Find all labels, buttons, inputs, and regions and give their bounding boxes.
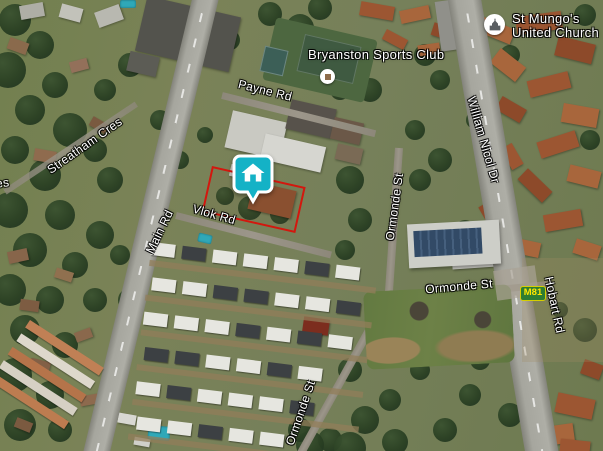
- tree: [433, 418, 457, 442]
- estate-house: [212, 250, 237, 266]
- estate-house: [151, 277, 176, 293]
- solar-panels: [413, 228, 482, 258]
- building-roof: [490, 48, 526, 82]
- tree: [428, 148, 452, 172]
- estate-house: [136, 417, 161, 433]
- tree: [0, 192, 28, 228]
- tree: [45, 200, 75, 230]
- estate-house: [167, 420, 192, 436]
- estate-house: [236, 358, 261, 374]
- route-badge-m81: M81: [520, 286, 546, 301]
- estate-house: [181, 246, 206, 262]
- church-label[interactable]: St Mungo's United Church: [512, 12, 599, 41]
- estate-house: [174, 315, 199, 331]
- estate-house: [197, 389, 222, 405]
- satellite-map[interactable]: Bryanston Sports Club St Mungo's United …: [0, 0, 603, 451]
- estate-house: [204, 319, 229, 335]
- building-roof: [527, 71, 572, 98]
- estate-house: [144, 347, 169, 363]
- house-marker-icon[interactable]: [231, 153, 275, 205]
- church-icon[interactable]: [484, 14, 505, 35]
- tree: [0, 52, 26, 88]
- estate-house: [259, 432, 284, 448]
- tree: [348, 208, 372, 232]
- sports-club-label[interactable]: Bryanston Sports Club: [308, 48, 444, 62]
- building-roof: [19, 299, 39, 313]
- tree: [26, 31, 54, 59]
- estate-house: [174, 351, 199, 367]
- tree: [382, 429, 408, 451]
- tree: [335, 240, 355, 260]
- estate-house: [274, 292, 299, 308]
- tree: [430, 70, 450, 90]
- tree: [308, 0, 332, 20]
- tree: [197, 127, 213, 143]
- road-label-partial: es: [0, 176, 10, 191]
- estate-house: [267, 362, 292, 378]
- road-label-ormonde-st-mid: Ormonde St: [384, 173, 406, 242]
- estate-house: [143, 312, 168, 328]
- building-roof: [566, 164, 601, 188]
- estate-house: [258, 396, 283, 412]
- building-roof: [335, 143, 364, 164]
- estate-house: [304, 261, 329, 277]
- estate-house: [135, 381, 160, 397]
- building-roof: [74, 327, 93, 342]
- tree: [379, 389, 401, 411]
- estate-house: [228, 428, 253, 444]
- tree: [97, 167, 123, 193]
- tree: [336, 166, 364, 194]
- building-roof: [399, 5, 431, 24]
- tree: [409, 169, 431, 191]
- estate-house: [243, 253, 268, 269]
- building-roof: [518, 168, 553, 202]
- building-roof: [559, 438, 590, 451]
- building-roof: [561, 103, 600, 128]
- estate-house: [166, 385, 191, 401]
- sports-club-poi-dot-icon[interactable]: [320, 69, 335, 84]
- estate-house: [213, 285, 238, 301]
- building-roof: [359, 1, 395, 21]
- poi-square-glyph: [325, 74, 331, 80]
- building-roof: [94, 4, 124, 28]
- tree: [83, 288, 107, 312]
- estate-house: [336, 300, 361, 316]
- building-roof: [543, 209, 583, 232]
- building-roof: [580, 359, 603, 380]
- open-field: [363, 284, 515, 370]
- building-roof: [19, 2, 45, 20]
- building-roof: [554, 392, 595, 419]
- tree: [15, 95, 45, 125]
- tree: [42, 72, 68, 98]
- estate-house: [266, 327, 291, 343]
- tree: [36, 286, 64, 314]
- estate-house: [205, 355, 230, 371]
- housing-estate: [125, 242, 378, 451]
- tree: [405, 120, 425, 140]
- tree: [1, 136, 29, 164]
- estate-house: [228, 393, 253, 409]
- estate-house: [273, 257, 298, 273]
- estate-house: [198, 424, 223, 440]
- tree: [459, 384, 481, 406]
- church-label-line2: United Church: [512, 26, 599, 40]
- estate-house: [335, 265, 360, 281]
- tree: [110, 245, 130, 265]
- building-roof: [59, 3, 84, 22]
- building-roof: [69, 58, 89, 73]
- tree: [94, 79, 116, 101]
- solar-roof-building: [407, 220, 501, 269]
- tree: [86, 221, 114, 249]
- estate-house: [235, 323, 260, 339]
- estate-house: [327, 334, 352, 350]
- swimming-pool: [197, 233, 213, 245]
- tree: [580, 130, 600, 150]
- estate-house: [305, 296, 330, 312]
- swimming-pool: [120, 0, 136, 8]
- estate-house: [243, 289, 268, 305]
- building-roof: [536, 130, 579, 159]
- estate-house: [297, 330, 322, 346]
- estate-house: [182, 281, 207, 297]
